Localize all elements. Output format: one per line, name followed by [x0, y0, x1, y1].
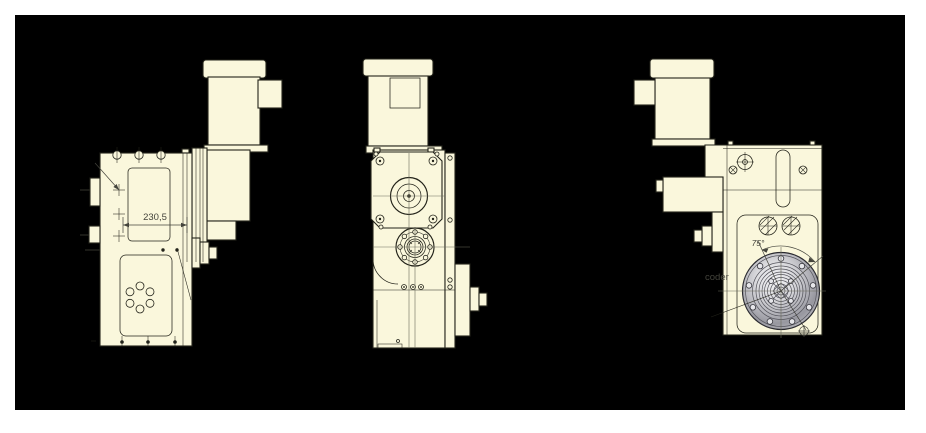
motor-cap	[650, 59, 714, 78]
adapter-block	[663, 177, 723, 212]
left-boss-lower	[89, 226, 100, 243]
junction-box	[258, 80, 282, 108]
left-boss-upper	[90, 178, 100, 206]
technical-drawing: 230,5	[0, 0, 926, 433]
page: 230,5	[0, 0, 926, 433]
dimension-label: 230,5	[143, 212, 167, 223]
motor-cap	[363, 59, 433, 76]
junction-box	[634, 80, 655, 105]
motor-body	[368, 76, 428, 146]
motor-body	[208, 77, 260, 145]
right-block	[455, 264, 470, 336]
side-plate	[445, 153, 455, 348]
encoder-label: coder	[705, 272, 729, 283]
motor-body	[655, 78, 710, 139]
motor-cap	[203, 60, 266, 78]
adapter-block	[207, 150, 250, 221]
input-plate	[712, 212, 723, 252]
section-bolt-right	[799, 166, 807, 174]
angle-label: 75°	[752, 238, 765, 248]
adapter-step	[207, 221, 236, 240]
section-bolt-left	[729, 166, 737, 174]
